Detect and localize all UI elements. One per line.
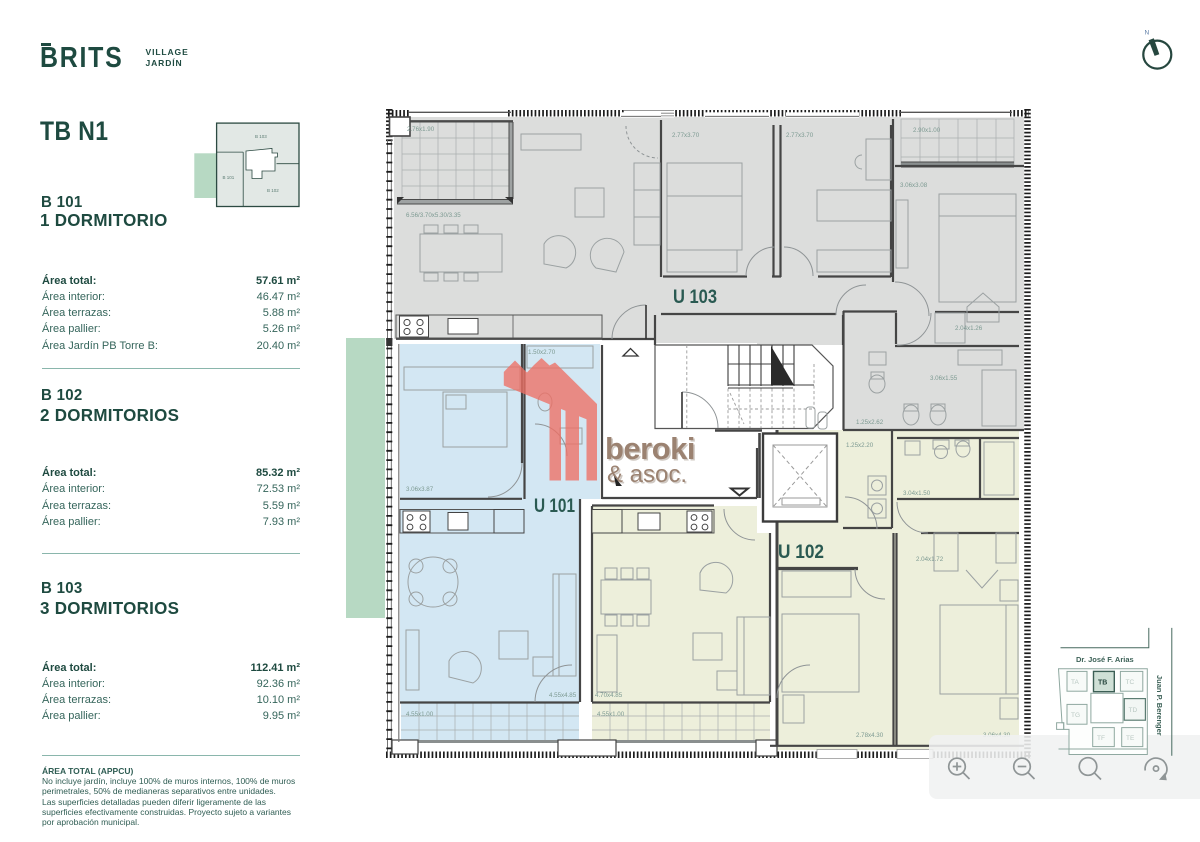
svg-text:3.06x3.87: 3.06x3.87 [406, 486, 434, 493]
svg-text:4.70x4.85: 4.70x4.85 [595, 692, 623, 699]
svg-text:TB: TB [1098, 680, 1107, 687]
svg-text:2.78x4.30: 2.78x4.30 [856, 732, 884, 739]
svg-text:N: N [1145, 30, 1150, 37]
svg-text:B 101: B 101 [223, 175, 235, 180]
svg-text:TE: TE [1126, 735, 1135, 742]
svg-text:4.55x4.85: 4.55x4.85 [549, 692, 577, 699]
svg-text:U 103: U 103 [673, 287, 717, 308]
svg-text:TD: TD [1129, 707, 1138, 714]
svg-text:1.25x2.62: 1.25x2.62 [856, 419, 884, 426]
svg-text:2.77x3.70: 2.77x3.70 [786, 132, 814, 139]
svg-text:B 102: B 102 [267, 188, 279, 193]
svg-text:TA: TA [1071, 679, 1079, 686]
svg-text:6.56/3.70x5.30/3.35: 6.56/3.70x5.30/3.35 [406, 212, 461, 219]
svg-text:2.04x1.26: 2.04x1.26 [955, 325, 983, 332]
svg-text:2.04x1.72: 2.04x1.72 [916, 556, 944, 563]
svg-text:Juan P. Berenger: Juan P. Berenger [1155, 675, 1164, 736]
svg-text:TF: TF [1097, 735, 1105, 742]
svg-text:TC: TC [1126, 679, 1135, 686]
svg-text:2.76x1.90: 2.76x1.90 [407, 126, 435, 133]
svg-text:U 102: U 102 [778, 542, 824, 563]
svg-text:Dr. José F. Arias: Dr. José F. Arias [1076, 655, 1134, 664]
svg-text:2.90x1.00: 2.90x1.00 [913, 127, 941, 134]
svg-text:4.55x1.00: 4.55x1.00 [597, 711, 625, 718]
svg-text:1.25x2.20: 1.25x2.20 [846, 442, 874, 449]
svg-text:TG: TG [1071, 712, 1080, 719]
svg-text:B 103: B 103 [255, 134, 267, 139]
svg-text:2.77x3.70: 2.77x3.70 [672, 132, 700, 139]
svg-text:U 101: U 101 [534, 496, 575, 517]
svg-text:1.50x2.70: 1.50x2.70 [528, 349, 556, 356]
svg-text:3.06x1.55: 3.06x1.55 [930, 375, 958, 382]
svg-text:4.55x1.00: 4.55x1.00 [406, 711, 434, 718]
svg-text:3.06x3.08: 3.06x3.08 [900, 182, 928, 189]
svg-text:3.04x1.50: 3.04x1.50 [903, 490, 931, 497]
